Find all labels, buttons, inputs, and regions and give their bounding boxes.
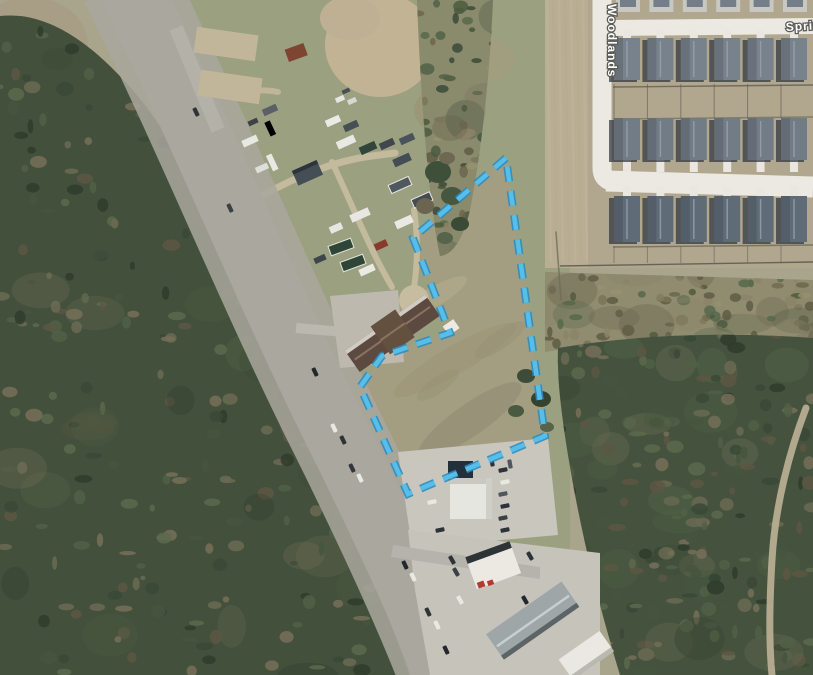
aerial-map-image: Woodlands Sprin	[0, 0, 813, 675]
street-label-spring: Sprin	[785, 18, 813, 34]
aerial-map-canvas: Woodlands Sprin	[0, 0, 813, 675]
street-label-woodlands: Woodlands	[605, 4, 619, 77]
street-spring	[612, 26, 813, 28]
street-lower	[606, 181, 813, 187]
